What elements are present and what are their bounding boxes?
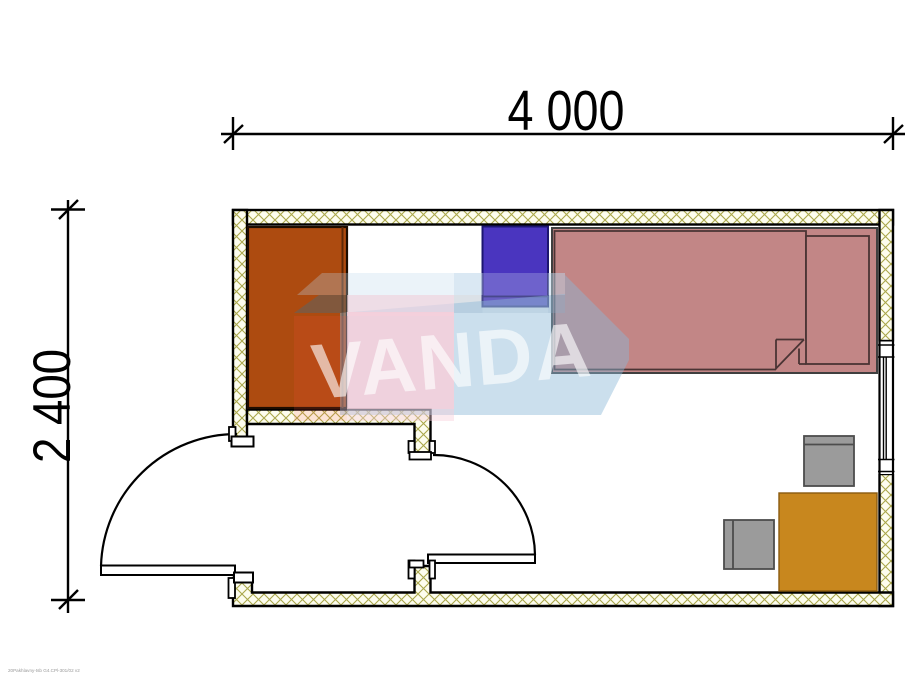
svg-text:20Pakhlavny-tsb G4.CPl-301/02: 20Pakhlavny-tsb G4.CPl-301/02 v2 bbox=[8, 668, 80, 673]
svg-text:4 000: 4 000 bbox=[508, 80, 625, 143]
svg-text:2 400: 2 400 bbox=[23, 349, 82, 463]
